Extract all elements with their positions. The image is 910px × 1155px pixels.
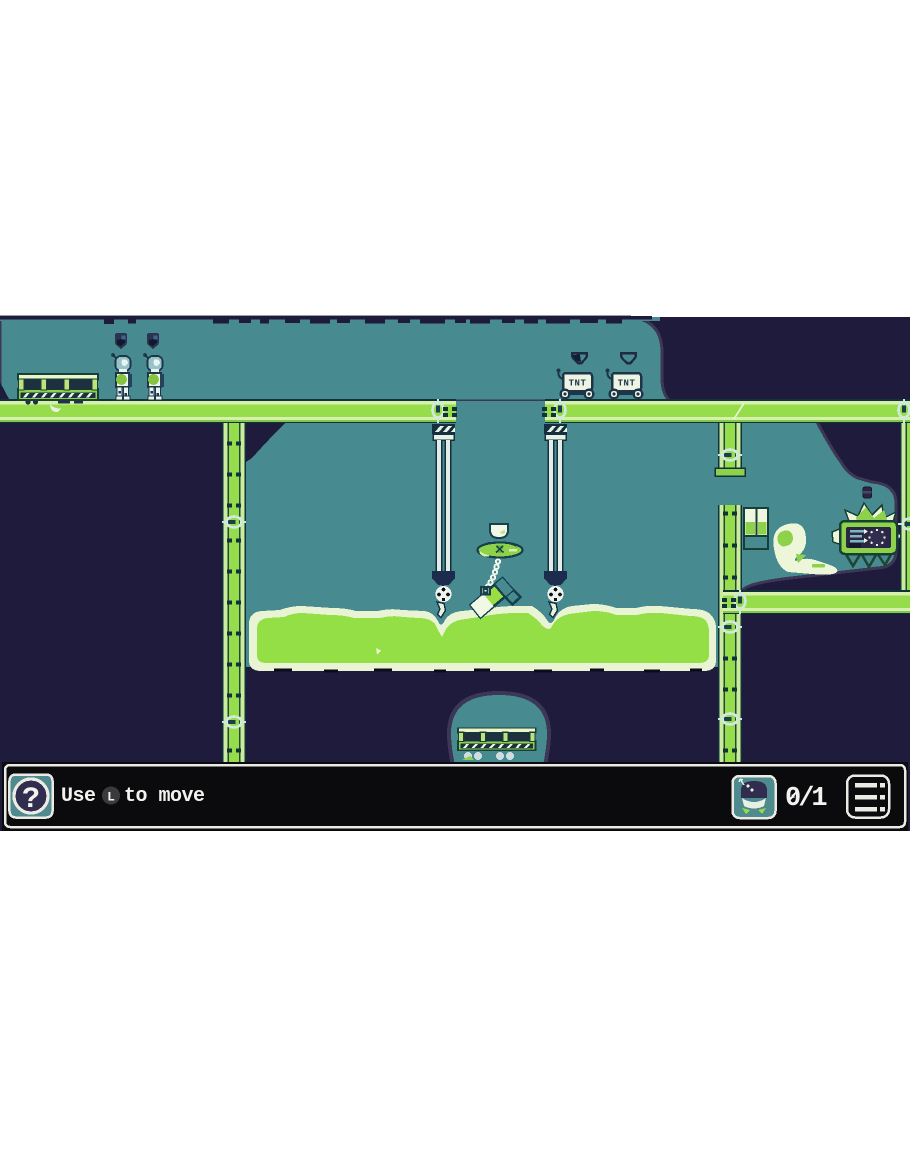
- svg-text:L: L: [107, 790, 115, 805]
- svg-text:to move: to move: [124, 785, 205, 808]
- svg-text:?: ?: [22, 783, 40, 817]
- svg-text:Use: Use: [61, 785, 96, 808]
